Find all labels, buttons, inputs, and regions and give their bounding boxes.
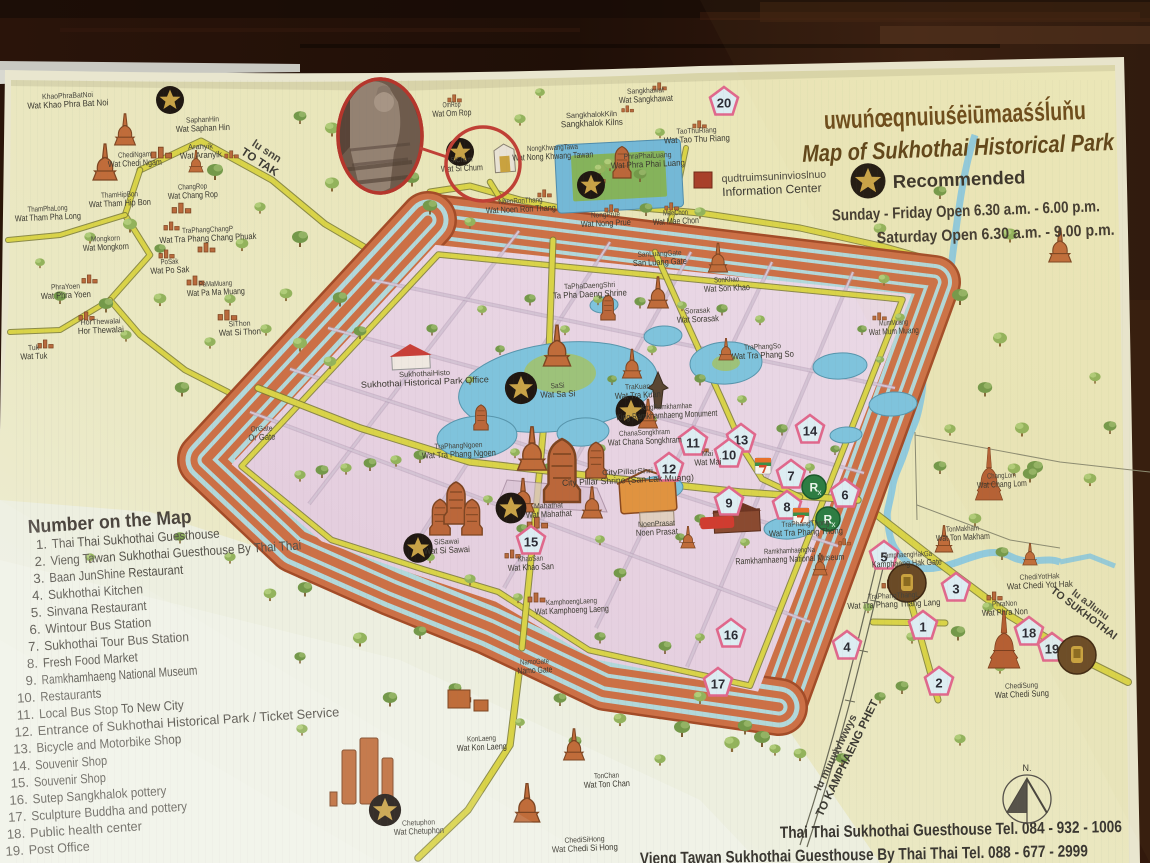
svg-text:Wat Mae Chon: Wat Mae Chon — [653, 215, 699, 227]
svg-text:Wat Aranyik: Wat Aranyik — [180, 149, 223, 161]
svg-text:9: 9 — [725, 496, 732, 511]
svg-text:Wat Sorasak: Wat Sorasak — [677, 313, 720, 325]
svg-text:14: 14 — [803, 424, 818, 439]
svg-text:Wat Sa Si: Wat Sa Si — [540, 388, 575, 400]
svg-text:1: 1 — [919, 620, 926, 635]
svg-text:Wat Son Khao: Wat Son Khao — [704, 282, 750, 294]
svg-text:Wat Om Rop: Wat Om Rop — [432, 107, 471, 119]
svg-text:Wat Khao San: Wat Khao San — [508, 561, 554, 573]
svg-text:2: 2 — [935, 676, 942, 691]
svg-text:Wat Mai: Wat Mai — [694, 456, 721, 467]
svg-text:Wat Mahathat: Wat Mahathat — [526, 508, 573, 520]
svg-text:Noen Prasat: Noen Prasat — [636, 526, 679, 538]
svg-text:3: 3 — [952, 582, 959, 597]
svg-text:Wat Tra Kuan: Wat Tra Kuan — [615, 389, 661, 401]
svg-text:Wat Si Sawai: Wat Si Sawai — [424, 544, 470, 556]
svg-text:4: 4 — [843, 640, 851, 655]
svg-text:N.: N. — [1023, 763, 1032, 773]
svg-text:15: 15 — [524, 535, 538, 550]
svg-text:Wat Mongkorn: Wat Mongkorn — [83, 241, 129, 253]
svg-text:Wat Tuk: Wat Tuk — [20, 350, 48, 361]
